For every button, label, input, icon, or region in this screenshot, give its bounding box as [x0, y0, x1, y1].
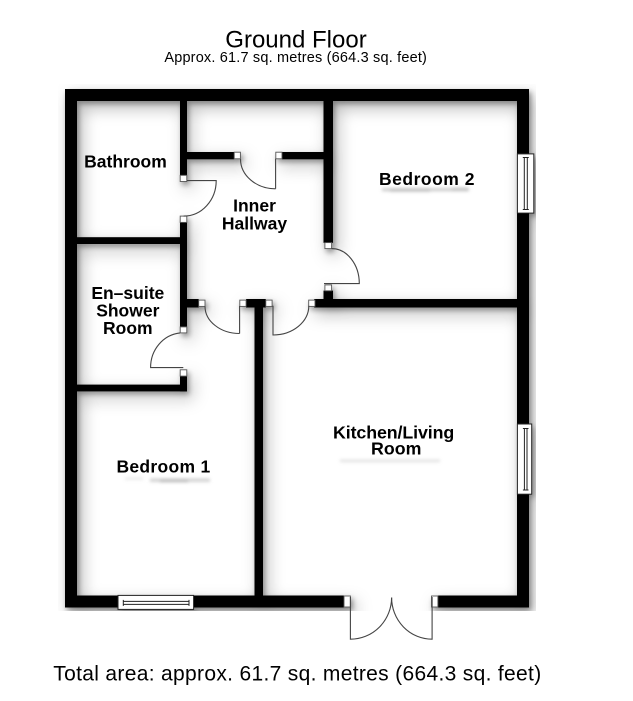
svg-text:Bathroom: Bathroom	[84, 152, 167, 172]
svg-text:Approx. 61.7 sq. metres (664.3: Approx. 61.7 sq. metres (664.3 sq. feet)	[164, 50, 427, 66]
svg-text:Bedroom 1: Bedroom 1	[116, 457, 210, 477]
svg-text:Total area: approx. 61.7 sq. m: Total area: approx. 61.7 sq. metres (664…	[53, 663, 541, 686]
svg-text:Room: Room	[371, 439, 421, 459]
svg-text:Room: Room	[103, 318, 153, 338]
svg-text:Hallway: Hallway	[222, 214, 287, 234]
svg-text:Bedroom 2: Bedroom 2	[379, 169, 475, 189]
svg-text:Inner: Inner	[233, 196, 276, 216]
